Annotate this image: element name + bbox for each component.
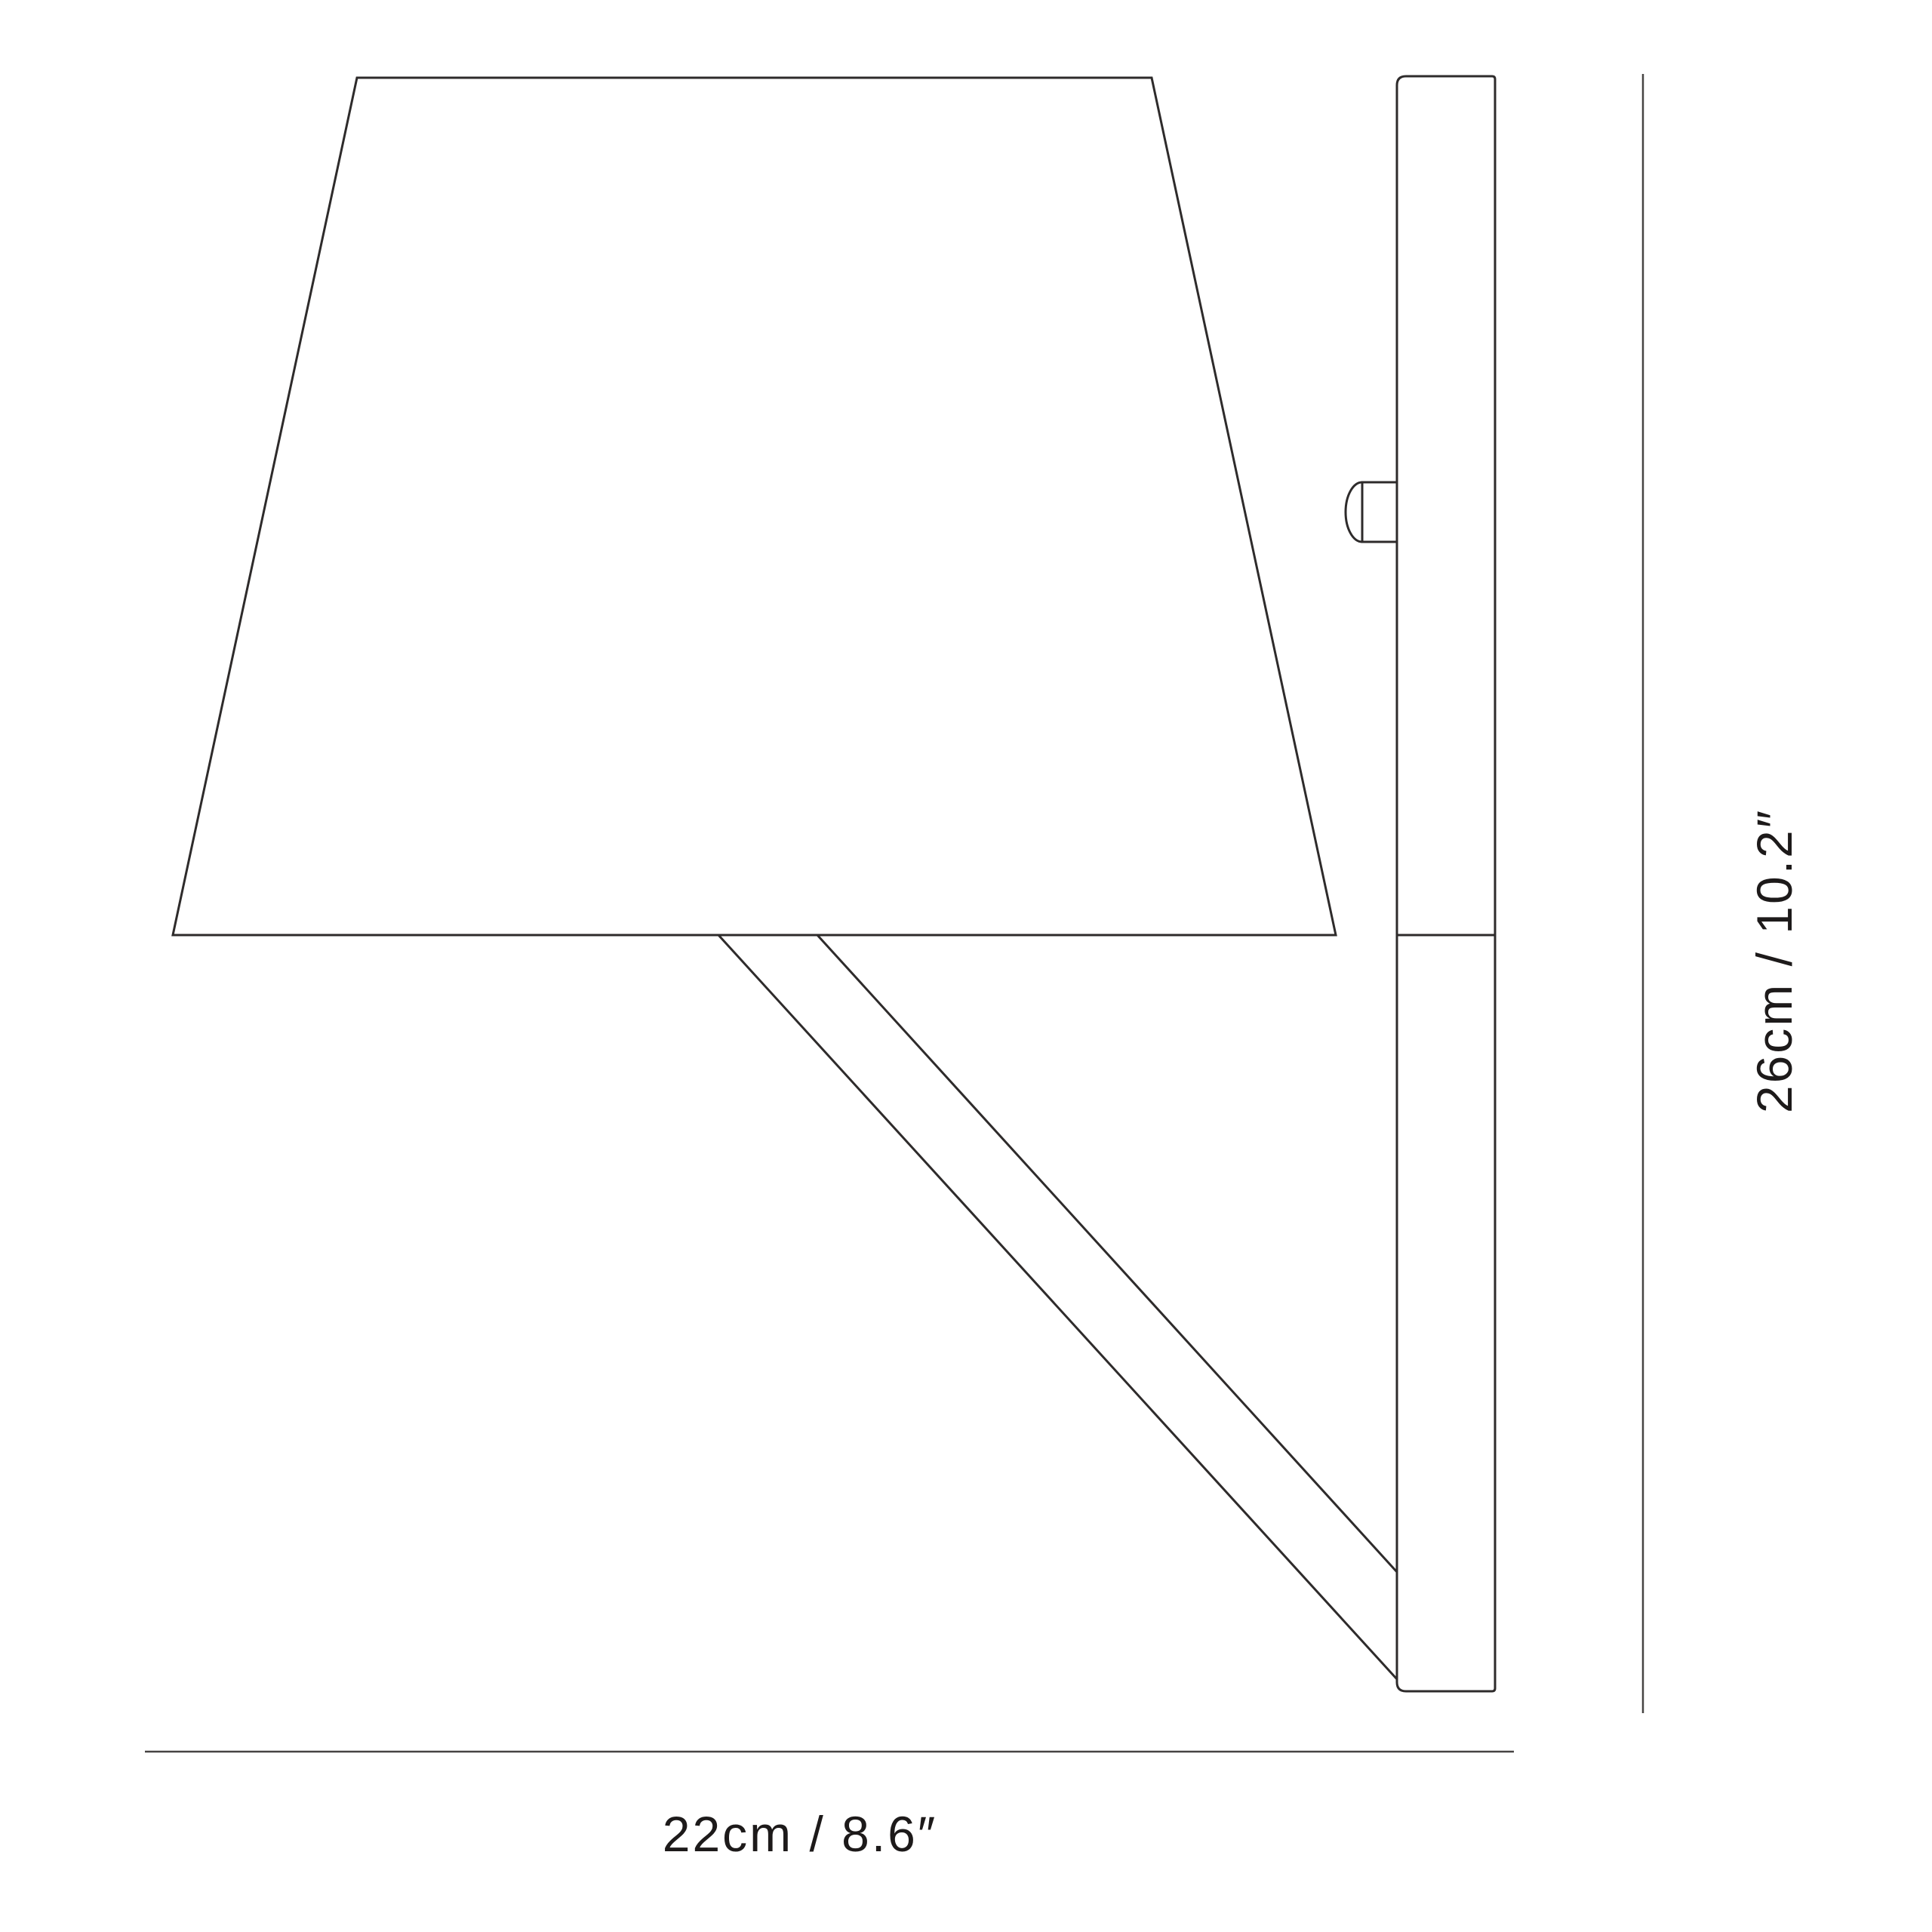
height-dimension-label: 26cm / 10.2″ [1746,808,1802,1113]
switch-knob [1346,482,1397,542]
width-dimension-label: 22cm / 8.6″ [663,1806,938,1862]
support-arm-upper-edge [817,935,1397,1572]
lampshade-outline [173,78,1336,935]
support-arm-lower-edge [718,935,1397,1679]
dimension-annotations: 22cm / 8.6″ 26cm / 10.2″ [145,74,1802,1862]
wall-lamp-line-drawing [173,76,1495,1691]
diagram-canvas: 22cm / 8.6″ 26cm / 10.2″ [0,0,1932,1932]
wall-mount-plate [1397,76,1495,1691]
